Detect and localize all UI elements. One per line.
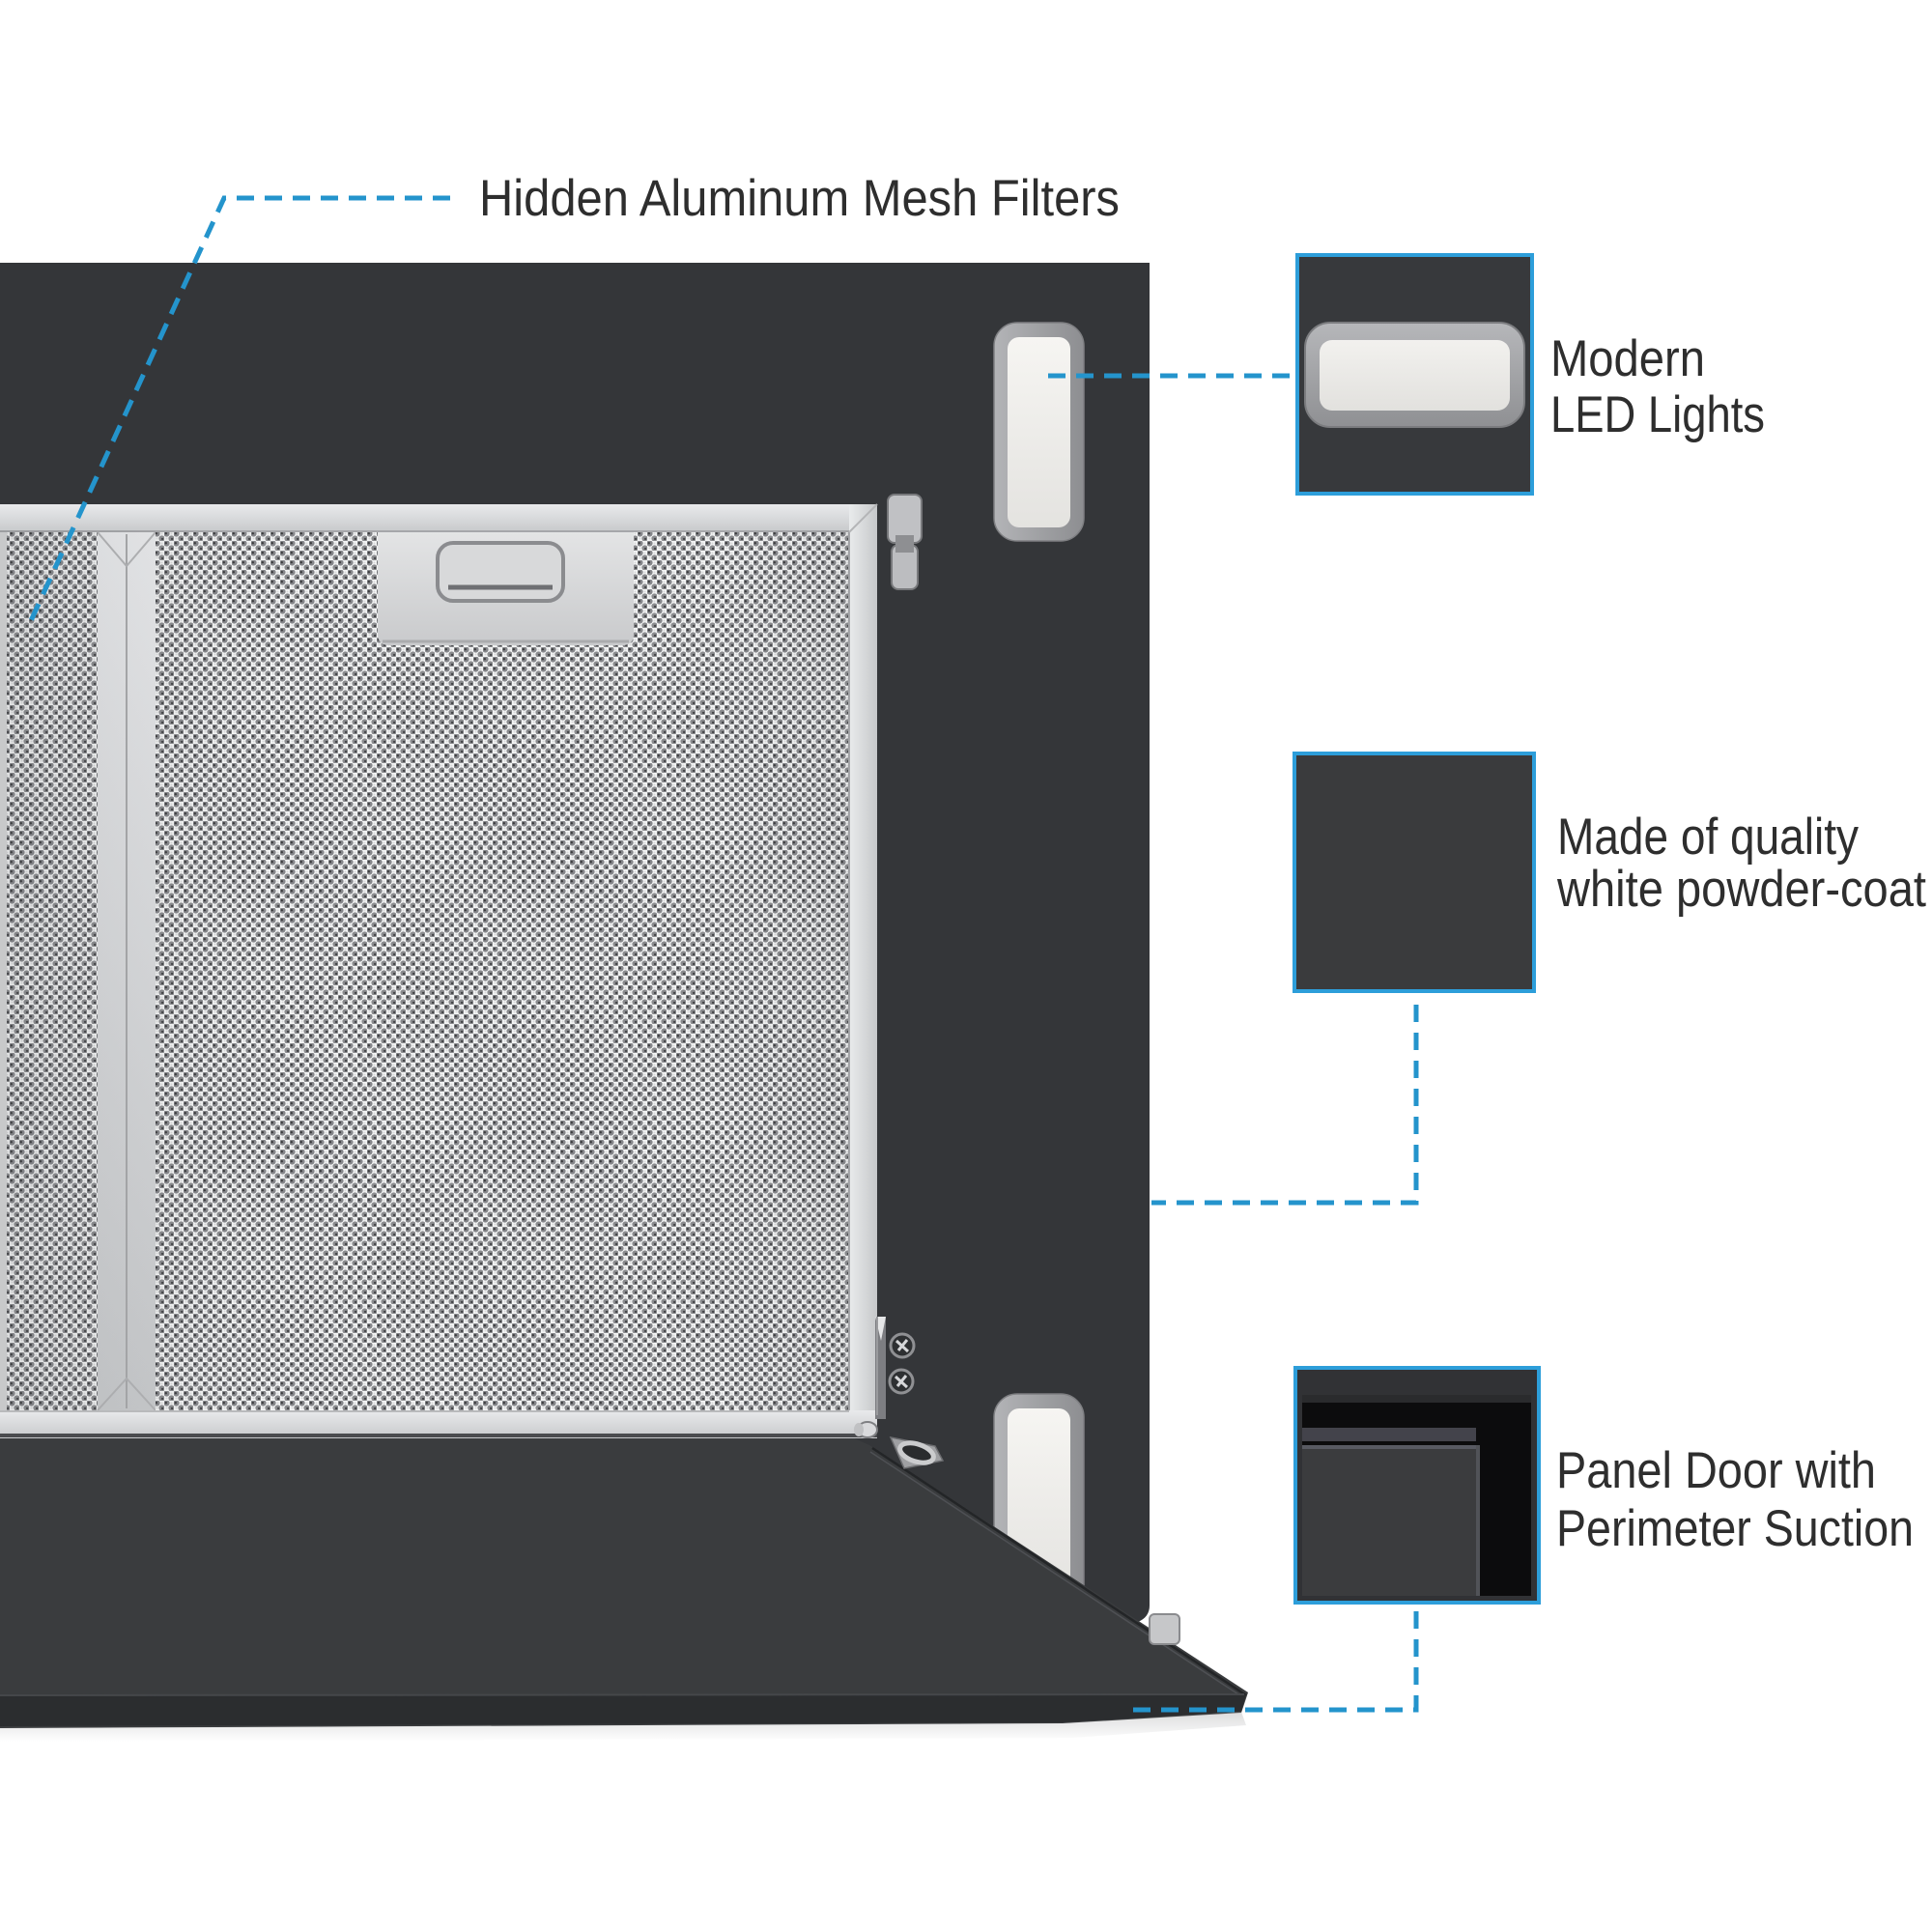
svg-text:LED Lights: LED Lights bbox=[1550, 386, 1765, 443]
svg-text:Panel Door with: Panel Door with bbox=[1556, 1442, 1876, 1499]
svg-text:Perimeter Suction: Perimeter Suction bbox=[1556, 1500, 1914, 1557]
svg-text:Modern: Modern bbox=[1550, 330, 1705, 387]
svg-text:white powder-coat: white powder-coat bbox=[1556, 861, 1926, 918]
svg-text:Hidden Aluminum Mesh Filters: Hidden Aluminum Mesh Filters bbox=[479, 170, 1120, 227]
svg-text:Made of quality: Made of quality bbox=[1557, 809, 1859, 866]
